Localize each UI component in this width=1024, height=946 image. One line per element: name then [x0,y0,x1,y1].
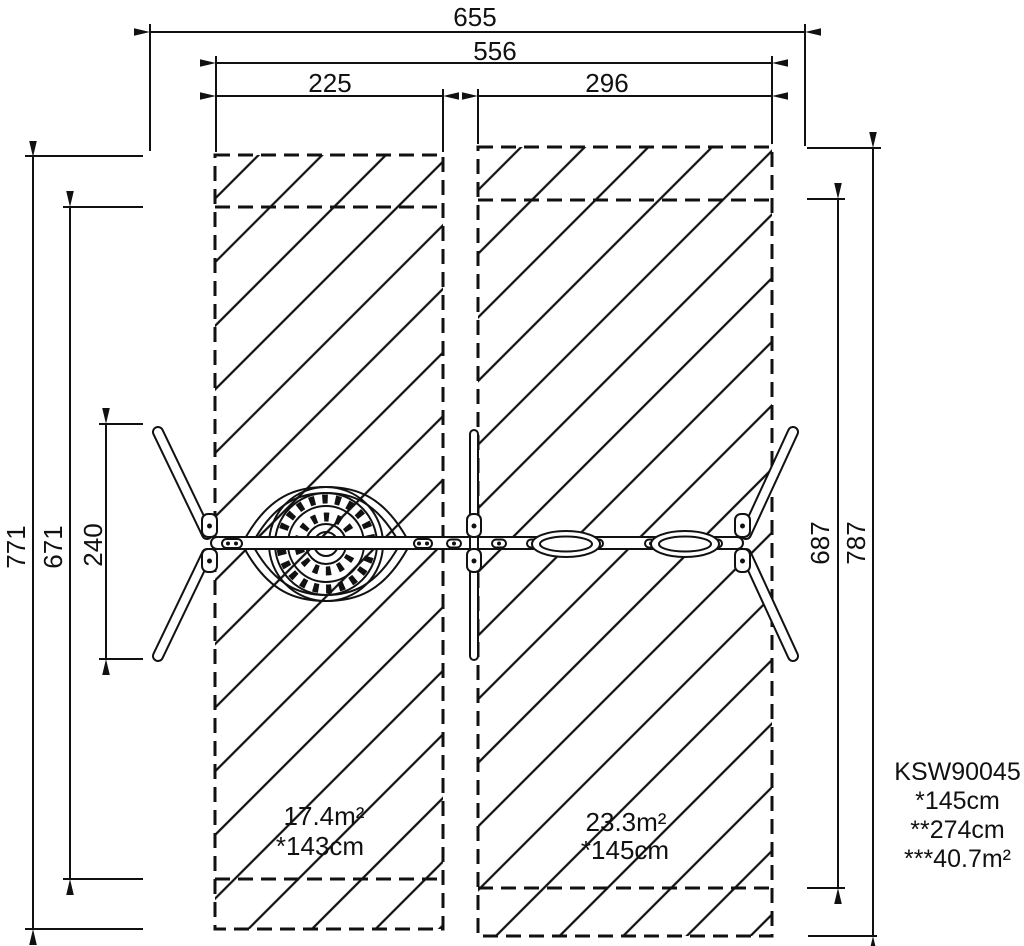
left-zone-height-note: *143cm [276,833,364,859]
dim-label-frame-depth: 240 [80,523,106,566]
technical-drawing-canvas: 655 556 225 296 771 671 240 687 787 17.4… [0,0,1024,946]
dim-label-right-inner-height: 687 [807,521,833,564]
right-zone-area-label: 23.3m² [586,809,667,835]
dim-label-inner-width: 556 [473,38,516,64]
product-info-block: KSW90045 *145cm **274cm ***40.7m² [885,758,1024,874]
dim-label-right-zone-width: 296 [585,70,628,96]
dim-label-left-outer-height: 771 [3,525,29,568]
a-frame-leg-left-bottom [158,554,207,656]
product-spec-3: ***40.7m² [885,845,1024,874]
product-code: KSW90045 [885,758,1024,787]
product-spec-2: **274cm [885,816,1024,845]
dim-label-left-zone-width: 225 [308,70,351,96]
product-spec-1: *145cm [885,787,1024,816]
swing-seat-left [532,531,600,557]
a-frame-leg-left-top [158,432,207,534]
swing-seat-right [651,531,719,557]
dim-label-right-outer-height: 787 [843,521,869,564]
dim-label-overall-width: 655 [453,4,496,30]
dim-label-left-inner-height: 671 [40,525,66,568]
left-zone-area-label: 17.4m² [284,803,365,829]
swing-set-plan-drawing [0,0,1024,946]
right-zone-height-note: *145cm [581,837,669,863]
